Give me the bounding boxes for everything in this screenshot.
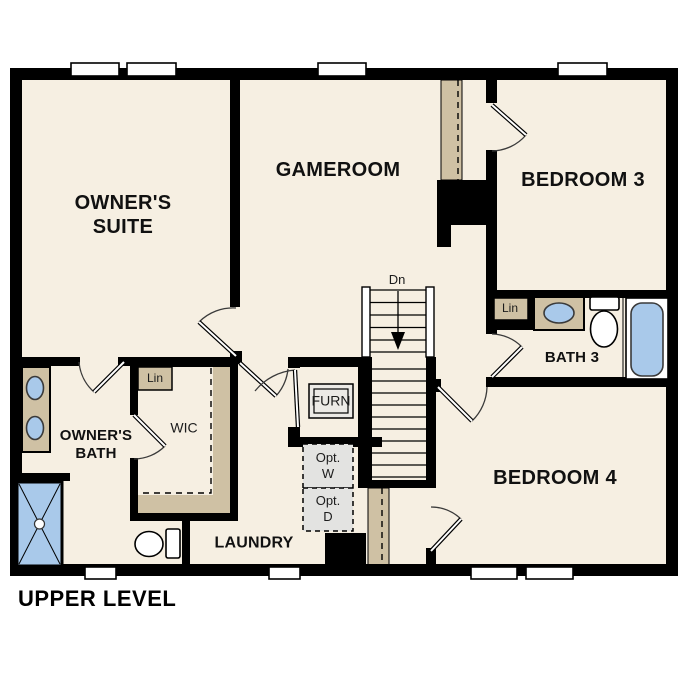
chase-lower: [368, 488, 389, 572]
room-label-wic: WIC: [170, 420, 197, 437]
bath3-tub: [623, 298, 668, 379]
owners-bath-toilet: [135, 529, 180, 558]
room-label-bath3: BATH 3: [545, 349, 599, 367]
wall-wic-top: [130, 357, 238, 367]
window-owners-suite-1: [71, 63, 119, 76]
wall-stair-right: [426, 357, 436, 488]
wall-wic-bottom: [130, 513, 238, 521]
wall-suite-gameroom: [230, 80, 240, 307]
wall-wic-left-upper: [130, 357, 138, 415]
floor-plan-canvas: [0, 0, 687, 687]
room-label-laundry: LAUNDRY: [214, 533, 293, 552]
owners-bath-shower: [17, 482, 62, 566]
wall-owners-bath-top-left: [22, 357, 80, 366]
stair-rail-right: [426, 287, 434, 357]
wall-laundry-corner-block: [325, 533, 366, 566]
optional-dryer-label: Opt. D: [316, 493, 341, 526]
wall-shower-stub: [14, 473, 70, 481]
wall-stair-left: [358, 357, 372, 488]
window-gameroom: [318, 63, 366, 76]
owners-bath-sink-1: [27, 377, 44, 400]
owners-bath-sink-2: [27, 417, 44, 440]
room-label-bedroom4: BEDROOM 4: [493, 466, 617, 490]
closet-label-linen-bath3: Lin: [502, 301, 518, 315]
room-label-owners-bath: OWNER'S BATH: [60, 427, 132, 463]
shower-drain: [35, 519, 45, 529]
floor-plan: OWNER'S SUITE GAMEROOM BEDROOM 3 BATH 3 …: [0, 0, 687, 687]
wall-core-block-stub: [437, 225, 451, 247]
wall-wic-left-lower: [130, 458, 138, 513]
wall-water-closet: [182, 521, 190, 566]
closet-label-furnace: FURN: [312, 393, 351, 410]
window-bedroom3: [558, 63, 607, 76]
room-label-bedroom3: BEDROOM 3: [521, 168, 645, 192]
window-owners-bath: [85, 567, 116, 579]
plan-title: UPPER LEVEL: [18, 586, 176, 612]
window-bedroom4-2: [526, 567, 573, 579]
chase-upper: [441, 80, 462, 180]
wall-core-block: [437, 180, 497, 225]
closet-label-linen-wic: Lin: [147, 371, 163, 385]
window-bedroom4-1: [471, 567, 517, 579]
bath3-sink: [544, 303, 574, 323]
window-owners-suite-2: [127, 63, 176, 76]
wall-stair-bottom: [366, 480, 436, 488]
room-label-owners-suite: OWNER'S SUITE: [75, 191, 172, 239]
room-label-gameroom: GAMEROOM: [276, 158, 401, 182]
wall-bedroom3-left-upper: [486, 80, 497, 103]
stairs-down-label: Dn: [389, 272, 406, 288]
optional-washer-label: Opt. W: [316, 450, 341, 483]
bath3-toilet: [590, 297, 619, 347]
stair-rail-left: [362, 287, 370, 357]
window-laundry: [269, 567, 300, 579]
wall-wic-right: [230, 362, 238, 521]
wall-furnace-left-upper: [288, 357, 300, 368]
